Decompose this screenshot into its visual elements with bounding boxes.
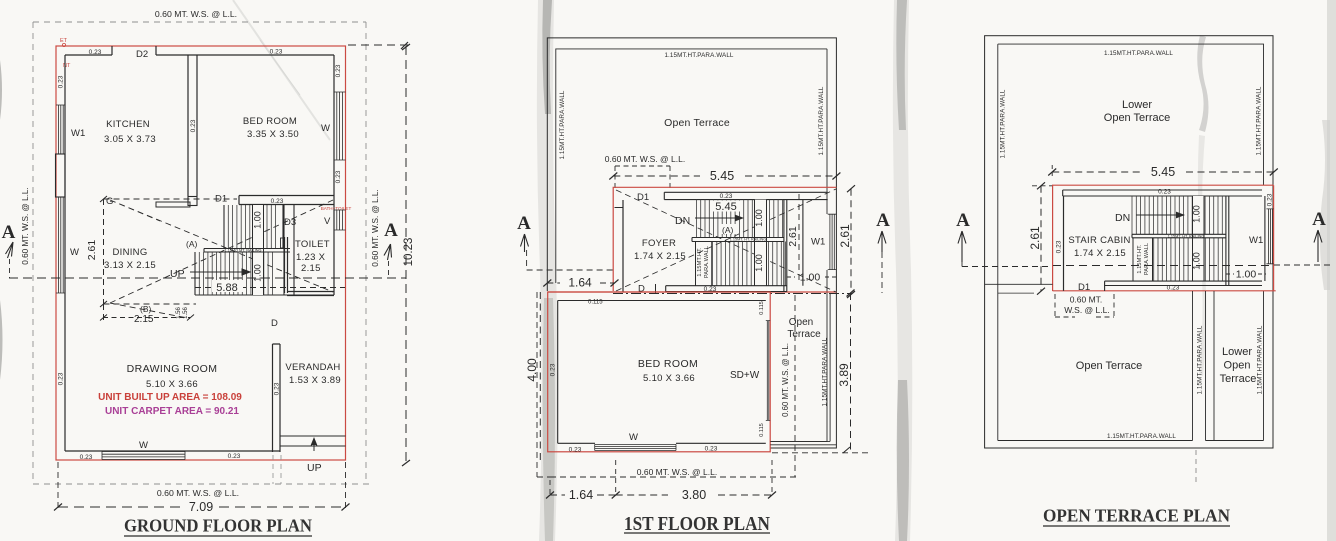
- svg-text:W: W: [139, 440, 148, 451]
- svg-text:0.23: 0.23: [271, 198, 284, 205]
- svg-text:1.23 X: 1.23 X: [296, 252, 326, 263]
- svg-text:1ST FLOOR PLAN: 1ST FLOOR PLAN: [624, 513, 770, 535]
- svg-text:W: W: [70, 247, 79, 258]
- svg-text:7.09: 7.09: [189, 500, 213, 514]
- svg-text:A: A: [517, 213, 531, 234]
- svg-text:1.15MO MT. RAILING: 1.15MO MT. RAILING: [225, 249, 262, 253]
- svg-text:UP: UP: [307, 462, 322, 474]
- svg-text:1.00: 1.00: [754, 254, 764, 272]
- svg-text:1.15MT.HT.: 1.15MT.HT.: [1137, 244, 1143, 274]
- svg-text:5.45: 5.45: [1151, 165, 1175, 179]
- svg-text:D1: D1: [637, 192, 649, 203]
- svg-text:0.23: 0.23: [550, 363, 557, 376]
- svg-text:3.35 X 3.50: 3.35 X 3.50: [247, 129, 299, 140]
- svg-text:0.23: 0.23: [58, 372, 65, 385]
- svg-text:0.23: 0.23: [1158, 189, 1171, 196]
- svg-text:Terrace: Terrace: [787, 329, 821, 340]
- svg-text:3.80: 3.80: [682, 488, 706, 502]
- svg-text:G: G: [106, 196, 113, 207]
- svg-text:2.61: 2.61: [86, 240, 98, 261]
- svg-text:0.60 MT. W.S. @ L.L.: 0.60 MT. W.S. @ L.L.: [605, 154, 685, 164]
- svg-text:1.15MT. HT. RAILING: 1.15MT. HT. RAILING: [1168, 234, 1205, 238]
- svg-text:0.23: 0.23: [720, 193, 733, 200]
- svg-text:D: D: [638, 284, 645, 295]
- svg-text:0.23: 0.23: [335, 64, 342, 77]
- svg-text:DN: DN: [1115, 212, 1130, 224]
- svg-text:1.53 X 3.89: 1.53 X 3.89: [289, 375, 341, 386]
- svg-text:DN: DN: [675, 215, 690, 227]
- svg-text:Open: Open: [789, 317, 813, 328]
- svg-text:1.00: 1.00: [754, 209, 764, 227]
- svg-text:BED ROOM: BED ROOM: [638, 358, 698, 370]
- svg-text:1.56: 1.56: [176, 307, 182, 319]
- svg-text:(A): (A): [186, 239, 198, 249]
- svg-text:0.60 MT. W.S. @ L.L.: 0.60 MT. W.S. @ L.L.: [637, 467, 717, 477]
- svg-text:D1: D1: [1078, 282, 1090, 293]
- svg-text:A: A: [956, 210, 970, 231]
- svg-text:3.13 X 2.15: 3.13 X 2.15: [104, 260, 156, 271]
- svg-text:BED ROOM: BED ROOM: [243, 116, 297, 127]
- svg-text:0.23: 0.23: [569, 447, 582, 454]
- svg-text:0.23: 0.23: [80, 454, 93, 461]
- svg-text:0.23: 0.23: [228, 453, 241, 460]
- svg-text:SD+W: SD+W: [730, 370, 760, 381]
- svg-text:0.60 MT. W.S. @ L.L.: 0.60 MT. W.S. @ L.L.: [155, 9, 237, 19]
- svg-text:DINING: DINING: [112, 247, 147, 258]
- svg-text:Terrace: Terrace: [1220, 373, 1257, 385]
- svg-text:W: W: [629, 432, 638, 443]
- svg-text:(B): (B): [140, 304, 152, 314]
- svg-text:0.23: 0.23: [1167, 285, 1180, 292]
- svg-text:1.00: 1.00: [253, 211, 263, 229]
- svg-text:1.15MT.HT.PARA.WALL: 1.15MT.HT.PARA.WALL: [664, 52, 733, 59]
- svg-text:1.56: 1.56: [183, 307, 189, 319]
- svg-text:PARA.WALL: PARA.WALL: [704, 246, 710, 278]
- svg-text:1.64: 1.64: [568, 276, 592, 290]
- svg-text:1.15MT.HT.PARA.WALL: 1.15MT.HT.PARA.WALL: [818, 86, 825, 155]
- svg-text:1.15MT.HT.PARA.WALL: 1.15MT.HT.PARA.WALL: [1257, 325, 1264, 394]
- svg-text:3.89: 3.89: [837, 363, 851, 387]
- svg-text:5.10 X 3.66: 5.10 X 3.66: [146, 379, 198, 390]
- svg-text:A: A: [876, 210, 890, 231]
- svg-text:D: D: [271, 318, 278, 329]
- svg-text:0.23: 0.23: [1055, 240, 1062, 253]
- svg-text:A: A: [2, 222, 16, 243]
- svg-text:Open Terrace: Open Terrace: [1104, 112, 1170, 124]
- svg-text:1.74 X 2.15: 1.74 X 2.15: [634, 251, 686, 262]
- svg-text:0.23: 0.23: [705, 446, 718, 453]
- svg-text:0.115: 0.115: [588, 300, 603, 306]
- svg-text:V: V: [324, 216, 331, 227]
- svg-text:Open Terrace: Open Terrace: [1076, 360, 1142, 372]
- svg-text:PARA.WALL: PARA.WALL: [1144, 243, 1150, 275]
- svg-text:W1: W1: [811, 237, 825, 248]
- svg-text:0.60 MT. W.S. @ L.L.: 0.60 MT. W.S. @ L.L.: [781, 343, 790, 417]
- svg-text:0.23: 0.23: [274, 382, 281, 395]
- svg-text:2.15: 2.15: [301, 263, 321, 274]
- svg-text:2.61: 2.61: [1028, 226, 1042, 250]
- svg-text:1.15MT.HT.PARA.WALL: 1.15MT.HT.PARA.WALL: [559, 90, 566, 159]
- svg-text:1.15MT.HT.PARA.WALL: 1.15MT.HT.PARA.WALL: [1197, 325, 1204, 394]
- svg-text:TOILET: TOILET: [295, 239, 330, 250]
- svg-text:1.15MT. HT. RAILING: 1.15MT. HT. RAILING: [730, 238, 767, 242]
- svg-text:D3: D3: [284, 217, 296, 228]
- svg-text:0.23: 0.23: [270, 49, 283, 56]
- svg-text:10.23: 10.23: [403, 238, 415, 267]
- svg-text:Lower: Lower: [1222, 346, 1252, 358]
- svg-text:5.45: 5.45: [715, 201, 736, 213]
- svg-text:Open Terrace: Open Terrace: [664, 117, 730, 129]
- svg-text:W: W: [321, 123, 330, 134]
- svg-text:Lower: Lower: [1122, 99, 1152, 111]
- svg-text:0.23: 0.23: [190, 119, 197, 132]
- svg-text:W1: W1: [1249, 235, 1263, 246]
- svg-text:0.115: 0.115: [759, 423, 765, 437]
- svg-text:W.S. @ L.L.: W.S. @ L.L.: [1064, 305, 1109, 315]
- svg-text:1.15MT.HT.PARA.WALL: 1.15MT.HT.PARA.WALL: [1256, 86, 1263, 155]
- svg-text:1.00: 1.00: [1236, 269, 1257, 281]
- svg-text:0.23: 0.23: [89, 49, 102, 56]
- svg-text:0.60 MT. W.S. @ L.L.: 0.60 MT. W.S. @ L.L.: [21, 187, 30, 264]
- svg-text:Open: Open: [1224, 360, 1251, 372]
- svg-text:0.23: 0.23: [58, 75, 65, 88]
- svg-text:A: A: [1312, 209, 1326, 230]
- svg-text:W1: W1: [71, 128, 85, 139]
- svg-text:VERANDAH: VERANDAH: [285, 362, 340, 373]
- svg-text:FOYER: FOYER: [642, 238, 676, 249]
- svg-text:2.15: 2.15: [134, 314, 154, 325]
- svg-text:1.00: 1.00: [253, 264, 263, 282]
- svg-text:0.60 MT. W.S. @ L.L.: 0.60 MT. W.S. @ L.L.: [157, 488, 239, 498]
- svg-text:DRAWING ROOM: DRAWING ROOM: [127, 363, 218, 375]
- svg-text:2.61: 2.61: [787, 226, 799, 247]
- svg-text:1.15MT.HT.PARA.WALL: 1.15MT.HT.PARA.WALL: [1000, 89, 1007, 158]
- svg-text:0.115: 0.115: [759, 301, 765, 315]
- svg-text:OPEN TERRACE PLAN: OPEN TERRACE PLAN: [1043, 506, 1230, 526]
- svg-text:1.15MT.HT.: 1.15MT.HT.: [697, 247, 703, 277]
- svg-text:0.23: 0.23: [335, 170, 342, 183]
- svg-text:5.10 X 3.66: 5.10 X 3.66: [643, 373, 695, 384]
- svg-text:4.00: 4.00: [525, 358, 539, 382]
- svg-text:1.64: 1.64: [569, 488, 593, 502]
- svg-text:KITCHEN: KITCHEN: [106, 119, 150, 130]
- svg-text:D2: D2: [136, 49, 148, 60]
- svg-text:1.74 X 2.15: 1.74 X 2.15: [1074, 248, 1126, 259]
- svg-text:0.23: 0.23: [1266, 193, 1273, 206]
- svg-text:1.00: 1.00: [800, 272, 821, 284]
- svg-text:0.60 MT. W.S. @ L.L.: 0.60 MT. W.S. @ L.L.: [371, 189, 380, 266]
- svg-text:UNIT CARPET AREA = 90.21: UNIT CARPET AREA = 90.21: [105, 406, 239, 417]
- svg-text:5.45: 5.45: [710, 169, 734, 183]
- svg-text:0.60 MT.: 0.60 MT.: [1070, 295, 1103, 305]
- svg-text:UNIT BUILT UP AREA = 108.09: UNIT BUILT UP AREA = 108.09: [98, 392, 242, 403]
- svg-text:STAIR CABIN: STAIR CABIN: [1068, 235, 1130, 246]
- svg-text:GROUND FLOOR PLAN: GROUND FLOOR PLAN: [124, 516, 312, 536]
- svg-text:2.61: 2.61: [838, 224, 852, 248]
- svg-text:1.15MT.HT.PARA.WALL: 1.15MT.HT.PARA.WALL: [822, 337, 829, 406]
- svg-text:A: A: [384, 220, 398, 241]
- svg-text:1.00: 1.00: [1192, 205, 1202, 223]
- svg-text:3.05 X 3.73: 3.05 X 3.73: [104, 134, 156, 145]
- svg-text:(A): (A): [722, 225, 734, 235]
- svg-text:5.88: 5.88: [216, 282, 237, 294]
- svg-text:NT: NT: [63, 63, 71, 69]
- svg-text:1.00: 1.00: [1192, 252, 1202, 270]
- svg-text:1.15MT.HT.PARA.WALL: 1.15MT.HT.PARA.WALL: [1104, 50, 1173, 57]
- svg-text:1.15MT.HT.PARA.WALL: 1.15MT.HT.PARA.WALL: [1107, 433, 1176, 440]
